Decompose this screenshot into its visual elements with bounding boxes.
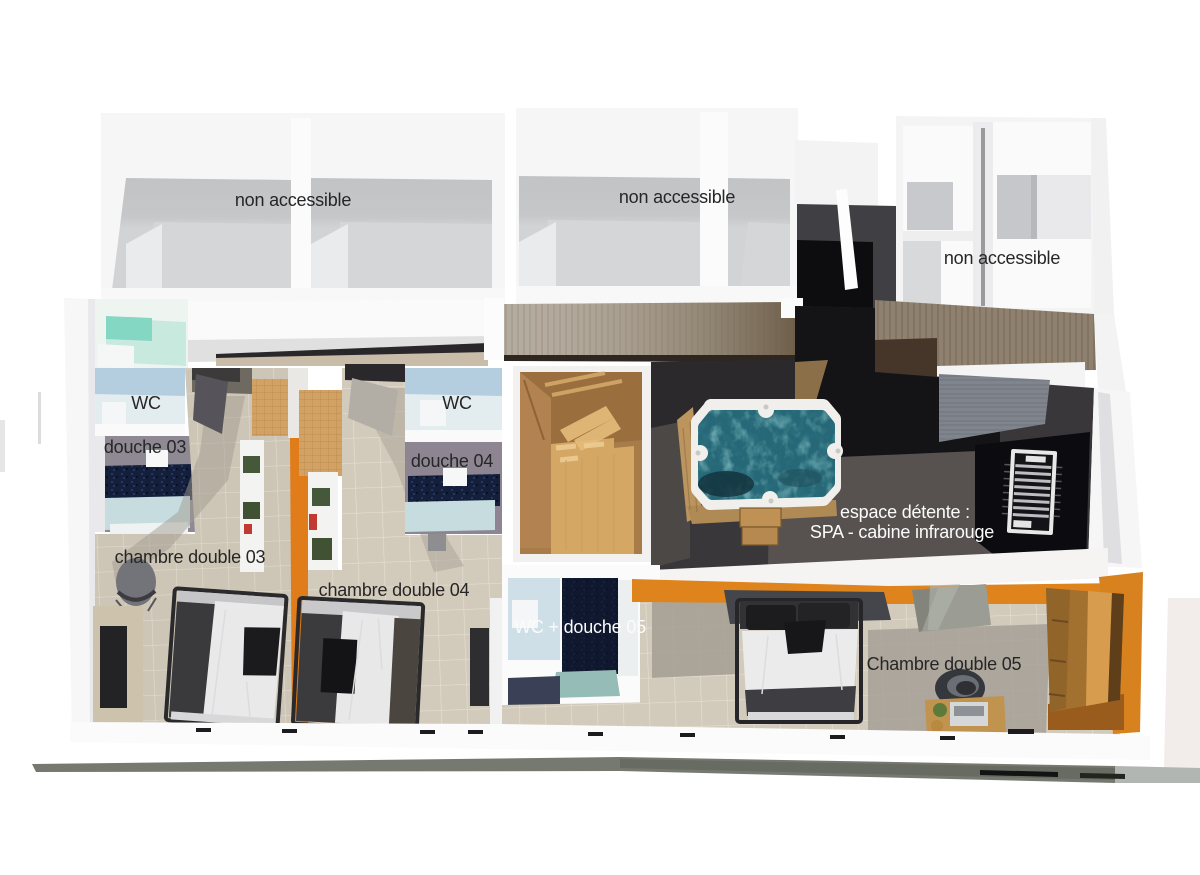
svg-text:Chambre double 05: Chambre double 05 bbox=[867, 654, 1022, 674]
svg-text:chambre double 03: chambre double 03 bbox=[115, 547, 266, 567]
svg-text:WC: WC bbox=[131, 393, 161, 413]
svg-text:espace détente :: espace détente : bbox=[840, 502, 970, 522]
svg-text:SPA - cabine infrarouge: SPA - cabine infrarouge bbox=[810, 522, 994, 542]
svg-text:non accessible: non accessible bbox=[619, 187, 735, 207]
svg-text:WC: WC bbox=[442, 393, 472, 413]
svg-text:douche 04: douche 04 bbox=[411, 451, 493, 471]
svg-text:WC + douche 05: WC + douche 05 bbox=[514, 617, 646, 637]
svg-text:douche 03: douche 03 bbox=[104, 437, 186, 457]
svg-text:chambre double 04: chambre double 04 bbox=[319, 580, 470, 600]
svg-text:non accessible: non accessible bbox=[944, 248, 1060, 268]
svg-text:non accessible: non accessible bbox=[235, 190, 351, 210]
